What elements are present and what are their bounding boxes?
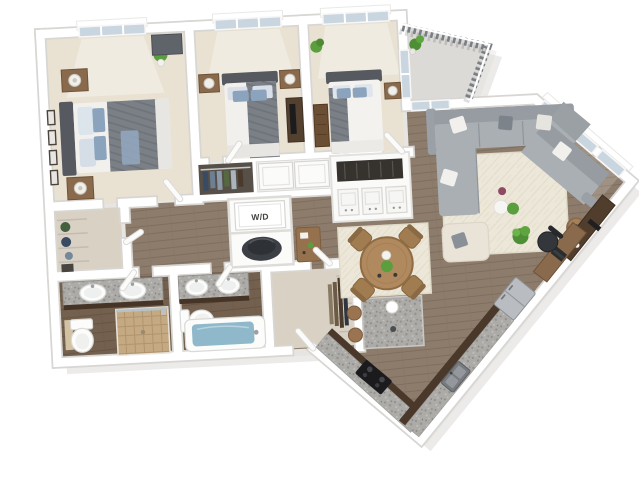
art-frame bbox=[48, 130, 56, 144]
bedroom-2-window bbox=[212, 10, 283, 30]
nightstand bbox=[199, 74, 220, 93]
nightstand bbox=[67, 177, 94, 200]
washer-dryer: W/D bbox=[234, 201, 285, 231]
bar-stool bbox=[347, 306, 362, 321]
dresser bbox=[313, 104, 329, 147]
hall-sliding-closet-doors bbox=[256, 158, 331, 192]
floor-plan-canvas: W/D bbox=[0, 0, 639, 479]
throw-pillow bbox=[536, 114, 553, 131]
dining-area bbox=[338, 222, 432, 304]
light-shaft bbox=[315, 22, 400, 78]
bed-3 bbox=[326, 69, 386, 154]
bedroom-2-open-closet bbox=[198, 162, 253, 195]
art-frame bbox=[50, 170, 58, 184]
double-vanity bbox=[62, 277, 163, 310]
nightstand bbox=[279, 70, 300, 89]
bar-stool bbox=[348, 328, 363, 343]
nightstand bbox=[384, 82, 401, 99]
toilet-master bbox=[70, 319, 94, 353]
throw-pillow bbox=[498, 115, 513, 130]
nightstand bbox=[61, 69, 88, 92]
washer-dryer-label: W/D bbox=[251, 211, 269, 222]
bed-2 bbox=[222, 71, 282, 160]
floor-plan-rendering: W/D bbox=[0, 0, 639, 479]
bed-master bbox=[59, 96, 173, 176]
rug-decor-dish bbox=[494, 200, 509, 215]
double-vanity-2 bbox=[178, 273, 249, 305]
laundry-closet: W/D bbox=[228, 196, 293, 267]
bedroom-3-window bbox=[320, 5, 391, 25]
bedroom-1-window bbox=[77, 18, 148, 38]
media-dresser bbox=[286, 97, 304, 142]
art-frame bbox=[47, 110, 55, 124]
hallway-console-table bbox=[296, 227, 322, 262]
ottoman-armchair bbox=[442, 222, 490, 262]
walk-in-shower bbox=[116, 307, 170, 356]
dresser bbox=[151, 34, 182, 56]
art-frame bbox=[49, 150, 57, 164]
bathtub bbox=[184, 316, 266, 352]
storage-cabinet-unit bbox=[330, 152, 412, 222]
apartment-unit: W/D bbox=[40, 0, 639, 471]
